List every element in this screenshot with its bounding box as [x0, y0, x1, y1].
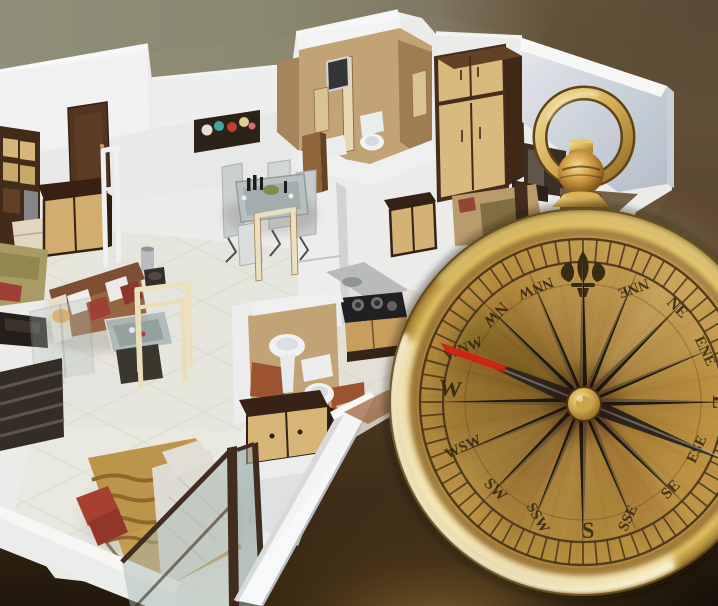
svg-text:W: W: [437, 375, 463, 403]
